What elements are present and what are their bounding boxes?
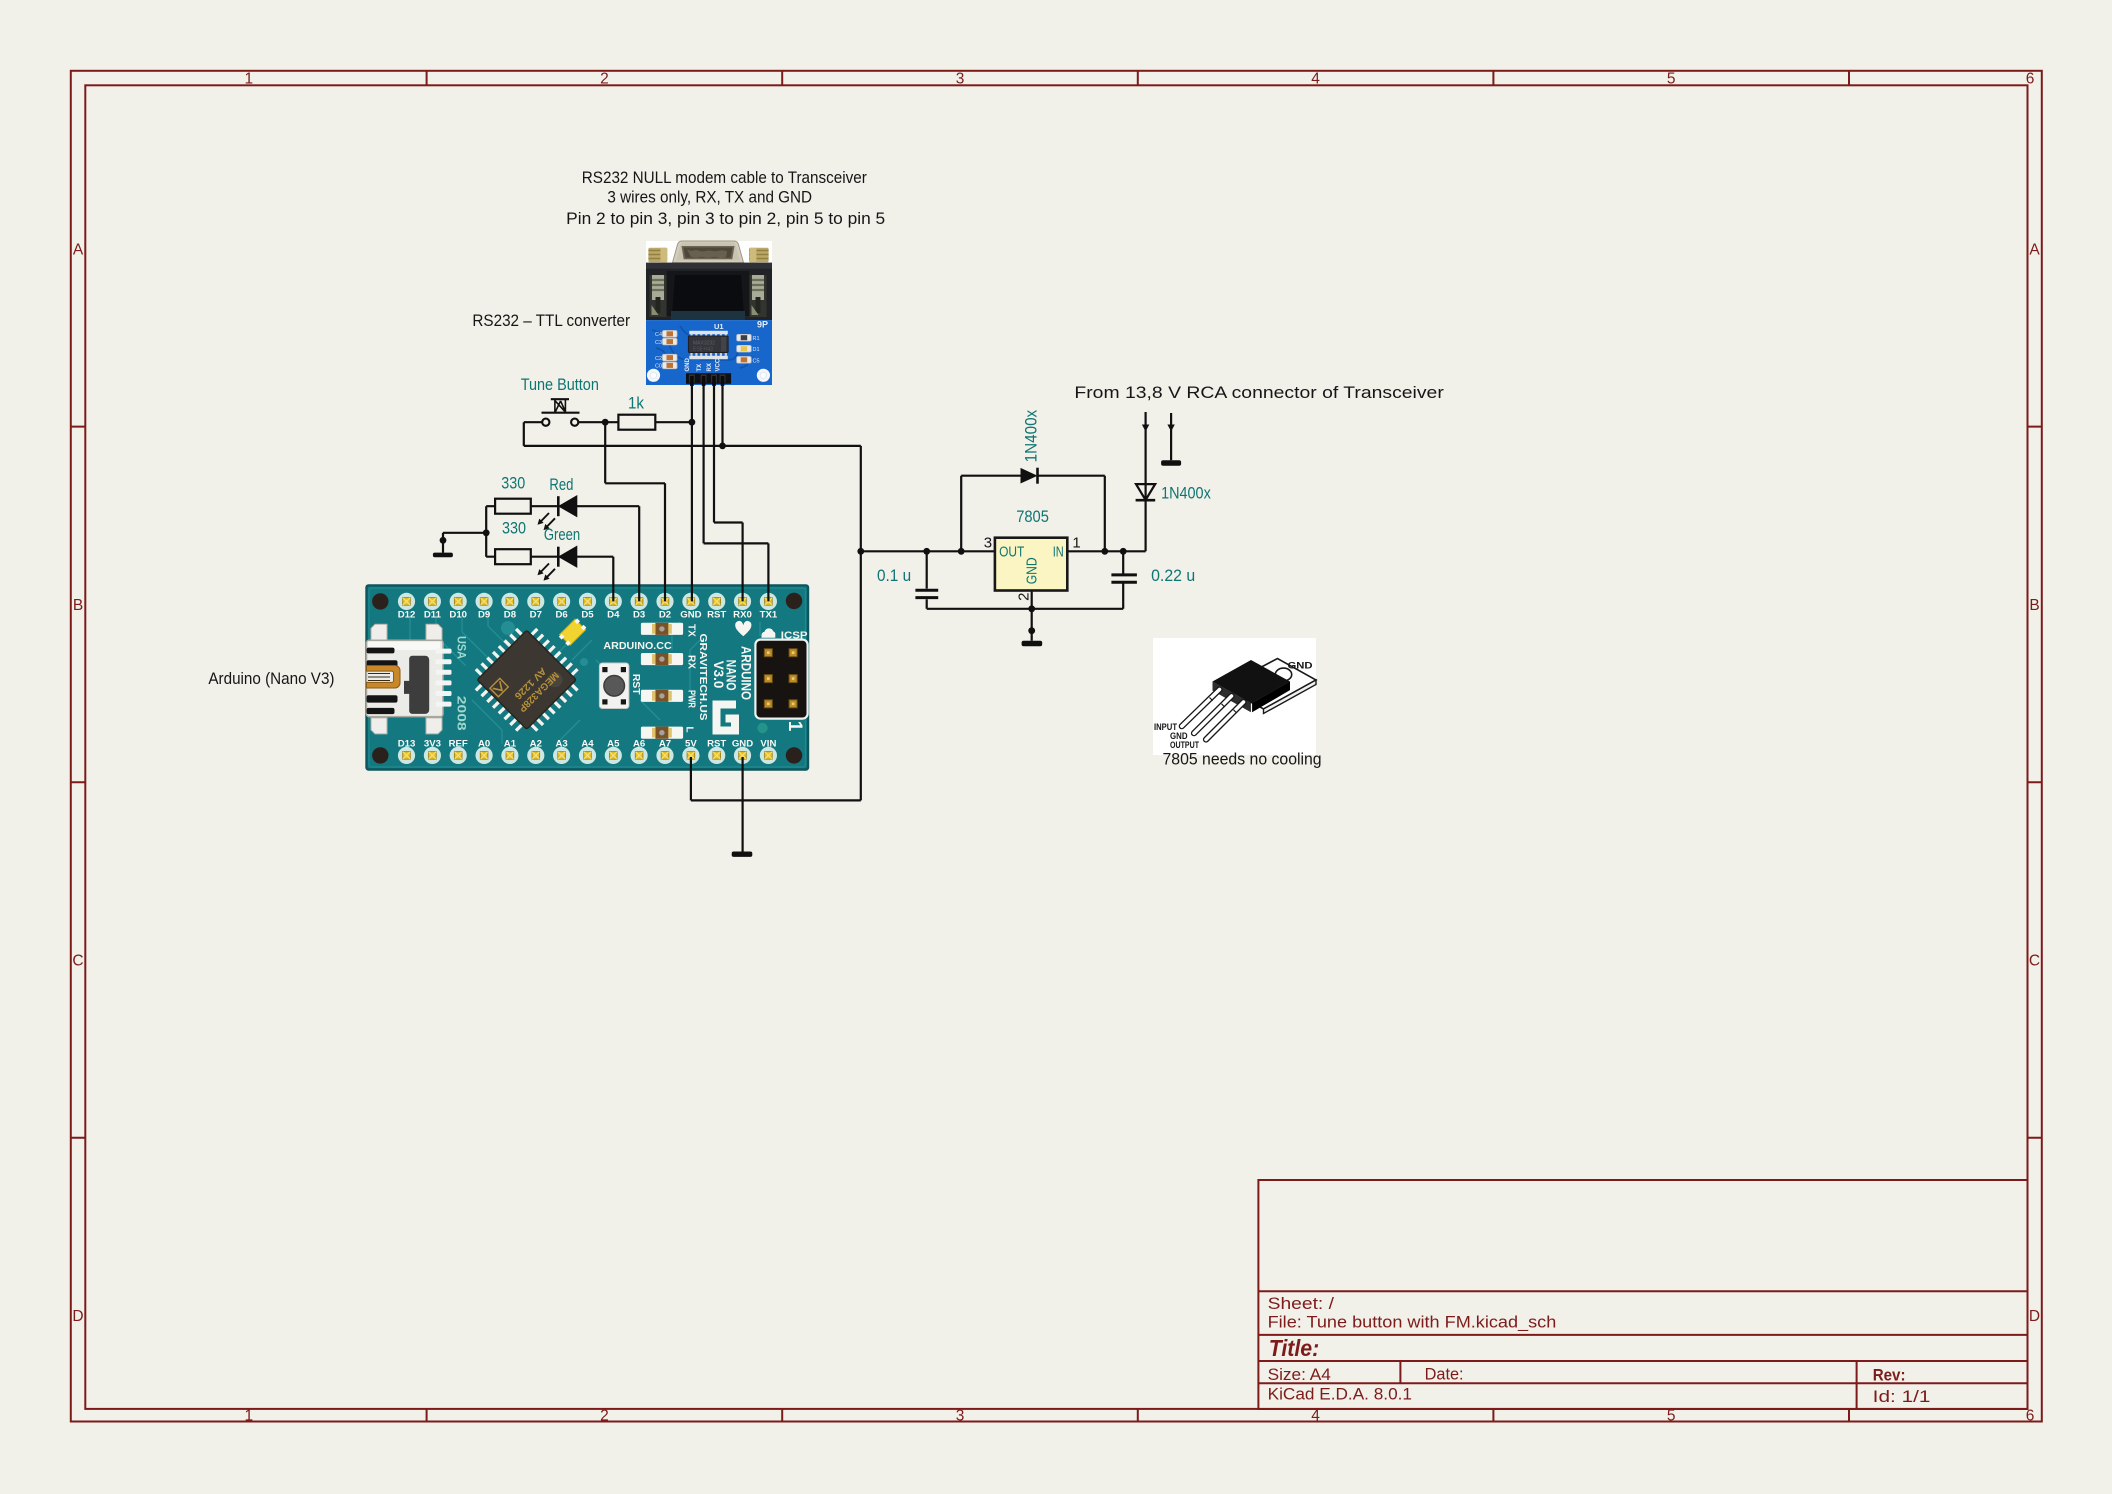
svg-text:A2: A2 — [530, 739, 542, 750]
svg-text:C: C — [72, 953, 83, 970]
svg-text:Red: Red — [549, 475, 573, 494]
svg-text:A: A — [2029, 241, 2040, 258]
svg-text:L: L — [684, 727, 695, 733]
svg-text:D5: D5 — [581, 610, 594, 621]
svg-text:C3: C3 — [655, 340, 662, 346]
svg-text:R1: R1 — [753, 336, 760, 342]
svg-text:6: 6 — [2026, 71, 2035, 88]
svg-text:GND: GND — [732, 739, 753, 750]
svg-text:RST: RST — [707, 739, 726, 750]
svg-text:7805 needs no cooling: 7805 needs no cooling — [1163, 750, 1322, 769]
svg-text:A7: A7 — [659, 739, 671, 750]
svg-text:4: 4 — [1311, 71, 1320, 88]
svg-text:OUT: OUT — [999, 543, 1024, 560]
svg-text:OUTPUT: OUTPUT — [1170, 740, 1199, 750]
svg-text:File: Tune button with FM.kica: File: Tune button with FM.kicad_sch — [1268, 1313, 1557, 1332]
svg-text:RX0: RX0 — [733, 610, 752, 621]
svg-text:C2: C2 — [655, 356, 662, 362]
svg-text:1N400x: 1N400x — [1021, 409, 1040, 462]
svg-text:USA: USA — [455, 636, 469, 659]
svg-text:PWR: PWR — [686, 690, 697, 709]
svg-text:D8: D8 — [504, 610, 517, 621]
svg-text:ARDUINO: ARDUINO — [739, 646, 754, 700]
svg-text:RX: RX — [707, 363, 713, 371]
svg-text:A0: A0 — [478, 739, 490, 750]
svg-text:RST: RST — [707, 610, 726, 621]
svg-text:330: 330 — [502, 519, 526, 538]
svg-text:D1: D1 — [753, 347, 760, 353]
svg-text:3: 3 — [956, 71, 965, 88]
svg-text:TX: TX — [697, 364, 703, 372]
svg-text:D10: D10 — [449, 610, 467, 621]
svg-text:B: B — [2029, 597, 2039, 614]
svg-text:Date:: Date: — [1425, 1365, 1464, 1384]
svg-text:2: 2 — [600, 71, 609, 88]
svg-text:Title:: Title: — [1269, 1335, 1320, 1361]
svg-text:REF: REF — [449, 739, 468, 750]
svg-text:RST: RST — [630, 674, 641, 695]
svg-text:1: 1 — [1072, 535, 1080, 552]
svg-text:9P: 9P — [757, 320, 768, 330]
svg-text:0.22 u: 0.22 u — [1151, 566, 1195, 585]
svg-text:C4: C4 — [655, 332, 662, 338]
svg-text:RX: RX — [686, 655, 697, 669]
svg-text:D11: D11 — [424, 610, 442, 621]
svg-text:0.1 u: 0.1 u — [877, 566, 911, 585]
svg-text:VIN: VIN — [760, 739, 776, 750]
svg-text:1: 1 — [244, 1408, 253, 1425]
svg-text:From 13,8 V RCA connector of T: From 13,8 V RCA connector of Transceiver — [1074, 383, 1444, 402]
svg-text:KiCad E.D.A. 8.0.1: KiCad E.D.A. 8.0.1 — [1268, 1385, 1412, 1404]
svg-text:C: C — [2029, 953, 2040, 970]
svg-text:D: D — [72, 1308, 83, 1325]
svg-text:IN: IN — [1053, 543, 1064, 560]
svg-text:5: 5 — [1667, 71, 1676, 88]
svg-text:RS232 NULL modem cable to Tran: RS232 NULL modem cable to Transceiver — [582, 168, 867, 187]
svg-text:A4: A4 — [581, 739, 594, 750]
svg-text:6: 6 — [2026, 1408, 2035, 1425]
svg-text:2: 2 — [600, 1408, 609, 1425]
svg-text:GND: GND — [680, 610, 701, 621]
svg-text:Sheet: /: Sheet: / — [1268, 1294, 1335, 1313]
svg-text:Rev:: Rev: — [1873, 1366, 1906, 1385]
svg-text:3 wires only, RX, TX and GND: 3 wires only, RX, TX and GND — [607, 188, 812, 207]
svg-text:V3.0: V3.0 — [711, 661, 726, 689]
svg-text:A3: A3 — [555, 739, 567, 750]
svg-text:D12: D12 — [398, 610, 416, 621]
svg-text:Arduino (Nano V3): Arduino (Nano V3) — [208, 669, 334, 688]
svg-text:ESE+I43: ESE+I43 — [693, 347, 713, 353]
svg-text:TX: TX — [686, 624, 697, 637]
svg-text:GND: GND — [685, 358, 691, 372]
svg-text:C5: C5 — [753, 359, 760, 365]
svg-text:330: 330 — [501, 474, 525, 493]
svg-text:A6: A6 — [633, 739, 645, 750]
svg-text:Id: 1/1: Id: 1/1 — [1873, 1387, 1931, 1406]
svg-text:3V3: 3V3 — [424, 739, 441, 750]
svg-text:Size: A4: Size: A4 — [1268, 1365, 1331, 1384]
svg-text:5: 5 — [1667, 1408, 1676, 1425]
svg-text:D3: D3 — [633, 610, 645, 621]
svg-text:3: 3 — [984, 535, 992, 552]
svg-text:3: 3 — [956, 1408, 965, 1425]
svg-text:GND: GND — [1024, 557, 1041, 584]
svg-text:D4: D4 — [607, 610, 620, 621]
svg-text:A1: A1 — [504, 739, 517, 750]
svg-text:D2: D2 — [659, 610, 671, 621]
svg-text:GRAVITECH.US: GRAVITECH.US — [697, 634, 709, 721]
svg-text:A: A — [73, 241, 84, 258]
svg-text:D13: D13 — [398, 739, 416, 750]
svg-text:U1: U1 — [714, 322, 724, 331]
svg-text:1k: 1k — [628, 394, 644, 413]
svg-text:2: 2 — [1015, 593, 1032, 601]
svg-text:7805: 7805 — [1016, 507, 1049, 526]
svg-text:Tune Button: Tune Button — [521, 375, 599, 394]
svg-text:B: B — [73, 597, 83, 614]
svg-text:D9: D9 — [478, 610, 490, 621]
svg-text:1: 1 — [784, 721, 805, 732]
svg-text:4: 4 — [1311, 1408, 1320, 1425]
svg-text:RS232 – TTL converter: RS232 – TTL converter — [472, 311, 630, 330]
svg-text:D7: D7 — [530, 610, 542, 621]
svg-text:C0: C0 — [655, 364, 662, 370]
svg-text:GND: GND — [1288, 661, 1313, 672]
svg-text:TX1: TX1 — [760, 610, 778, 621]
svg-text:Pin 2 to pin 3, pin 3 to pin 2: Pin 2 to pin 3, pin 3 to pin 2, pin 5 to… — [566, 209, 885, 228]
svg-text:1N400x: 1N400x — [1161, 484, 1211, 503]
svg-text:D: D — [2029, 1308, 2040, 1325]
svg-text:2008: 2008 — [455, 696, 469, 731]
svg-text:D6: D6 — [555, 610, 567, 621]
svg-text:1: 1 — [244, 71, 253, 88]
svg-text:VCC: VCC — [716, 358, 722, 371]
svg-text:A5: A5 — [607, 739, 620, 750]
svg-text:Green: Green — [544, 525, 580, 544]
svg-text:5V: 5V — [685, 739, 697, 750]
svg-text:ARDUINO.CC: ARDUINO.CC — [603, 640, 672, 652]
